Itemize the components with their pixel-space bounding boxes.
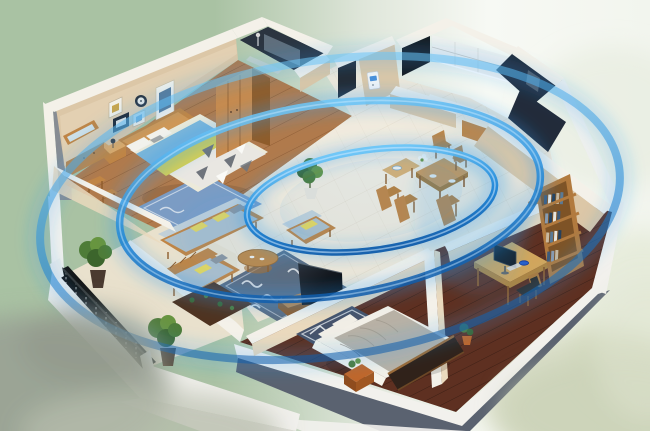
wall-control-panel <box>367 71 380 89</box>
isometric-apartment-scene <box>0 0 650 431</box>
blue-mouse-pad <box>519 261 528 265</box>
shower-head <box>256 33 260 37</box>
wifi-home-illustration <box>0 0 650 431</box>
